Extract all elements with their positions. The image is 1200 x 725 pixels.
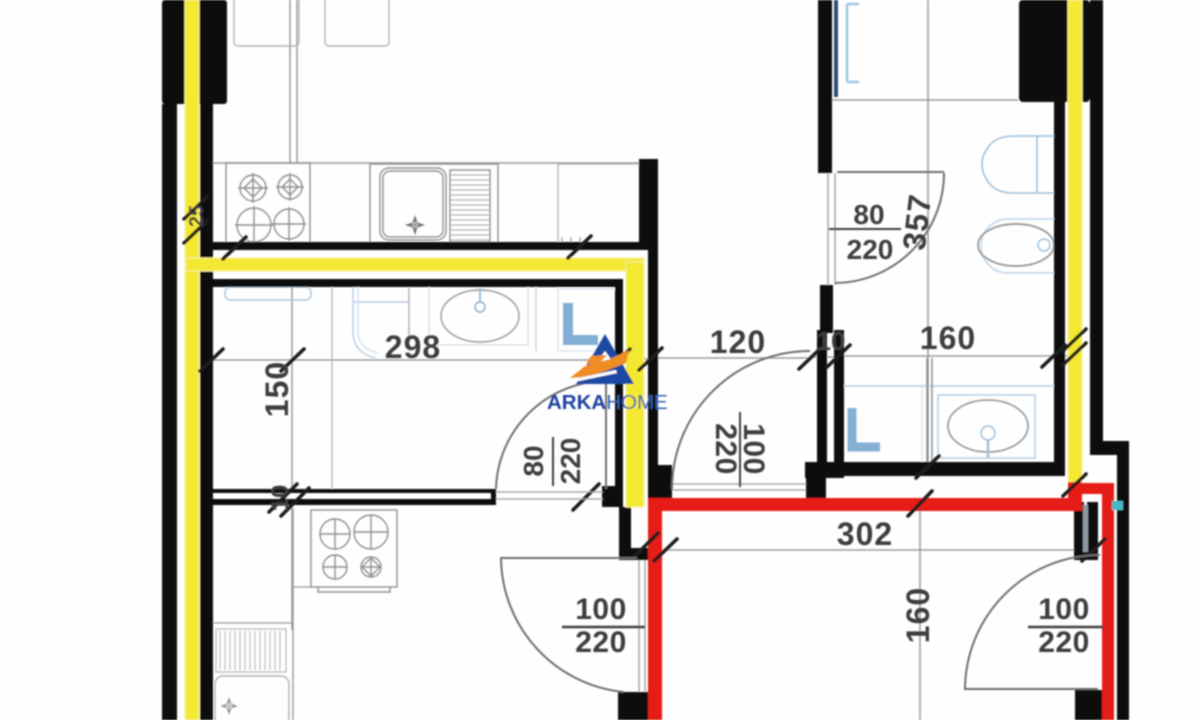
svg-text:100: 100 (575, 593, 627, 626)
svg-text:220: 220 (555, 438, 586, 485)
svg-text:80: 80 (853, 199, 884, 230)
svg-text:160: 160 (920, 320, 976, 356)
svg-text:10: 10 (817, 326, 846, 356)
svg-text:150: 150 (259, 361, 295, 417)
svg-text:220: 220 (575, 626, 627, 659)
svg-text:302: 302 (837, 516, 893, 552)
svg-text:357: 357 (896, 192, 939, 252)
svg-text:ARKAHOME: ARKAHOME (547, 391, 668, 414)
svg-text:160: 160 (900, 587, 936, 643)
svg-text:100: 100 (1038, 593, 1090, 626)
svg-text:298: 298 (385, 329, 441, 365)
svg-text:120: 120 (710, 324, 766, 360)
svg-text:10: 10 (267, 485, 294, 512)
svg-text:220: 220 (847, 234, 894, 265)
svg-text:220: 220 (709, 423, 742, 475)
svg-text:80: 80 (518, 445, 549, 476)
svg-text:25: 25 (186, 205, 208, 227)
svg-text:220: 220 (1038, 626, 1090, 659)
